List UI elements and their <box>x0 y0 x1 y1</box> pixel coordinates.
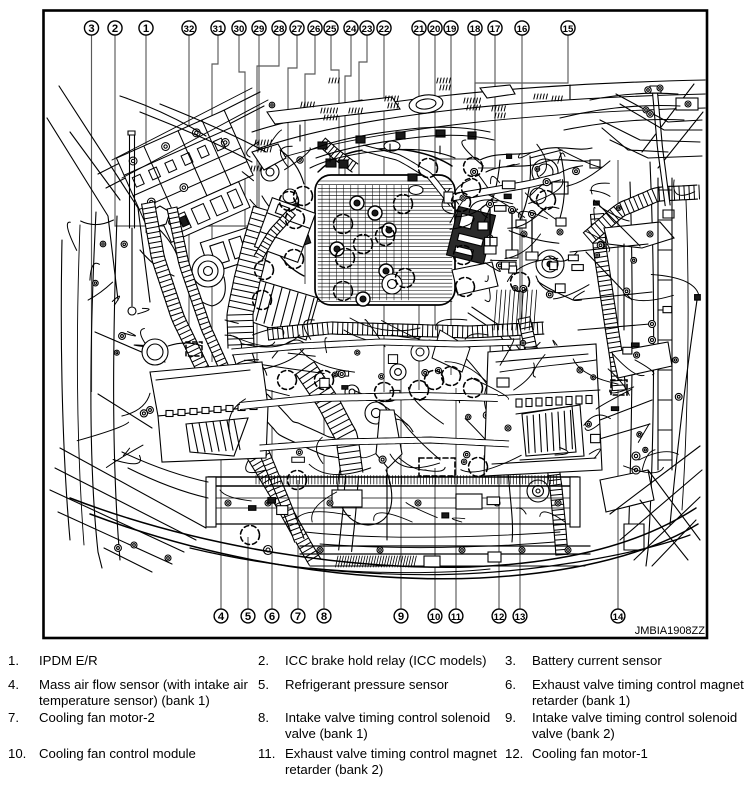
svg-text:11: 11 <box>451 612 462 623</box>
svg-text:25: 25 <box>326 24 337 35</box>
svg-text:3: 3 <box>88 23 94 35</box>
svg-text:26: 26 <box>310 24 321 35</box>
svg-text:4: 4 <box>218 611 225 623</box>
svg-text:30: 30 <box>234 24 245 35</box>
svg-text:7: 7 <box>295 611 301 623</box>
svg-text:5: 5 <box>245 611 251 623</box>
svg-text:20: 20 <box>430 24 441 35</box>
svg-text:10: 10 <box>430 612 441 623</box>
svg-text:27: 27 <box>292 24 303 35</box>
svg-text:1: 1 <box>143 23 149 35</box>
svg-text:28: 28 <box>274 24 285 35</box>
svg-text:21: 21 <box>414 24 425 35</box>
svg-text:31: 31 <box>213 24 224 35</box>
svg-text:29: 29 <box>254 24 265 35</box>
svg-text:6: 6 <box>269 611 275 623</box>
svg-text:23: 23 <box>362 24 373 35</box>
svg-text:32: 32 <box>184 24 195 35</box>
svg-text:9: 9 <box>398 611 404 623</box>
svg-text:2: 2 <box>112 23 118 35</box>
svg-text:14: 14 <box>613 612 624 623</box>
svg-text:22: 22 <box>379 24 390 35</box>
svg-text:18: 18 <box>470 24 481 35</box>
svg-text:JMBIA1908ZZ: JMBIA1908ZZ <box>635 625 706 637</box>
svg-text:17: 17 <box>490 24 501 35</box>
svg-text:8: 8 <box>321 611 327 623</box>
svg-text:24: 24 <box>346 24 357 35</box>
svg-text:13: 13 <box>515 612 526 623</box>
svg-text:16: 16 <box>517 24 528 35</box>
svg-text:15: 15 <box>563 24 574 35</box>
svg-text:19: 19 <box>446 24 457 35</box>
svg-text:12: 12 <box>494 612 505 623</box>
